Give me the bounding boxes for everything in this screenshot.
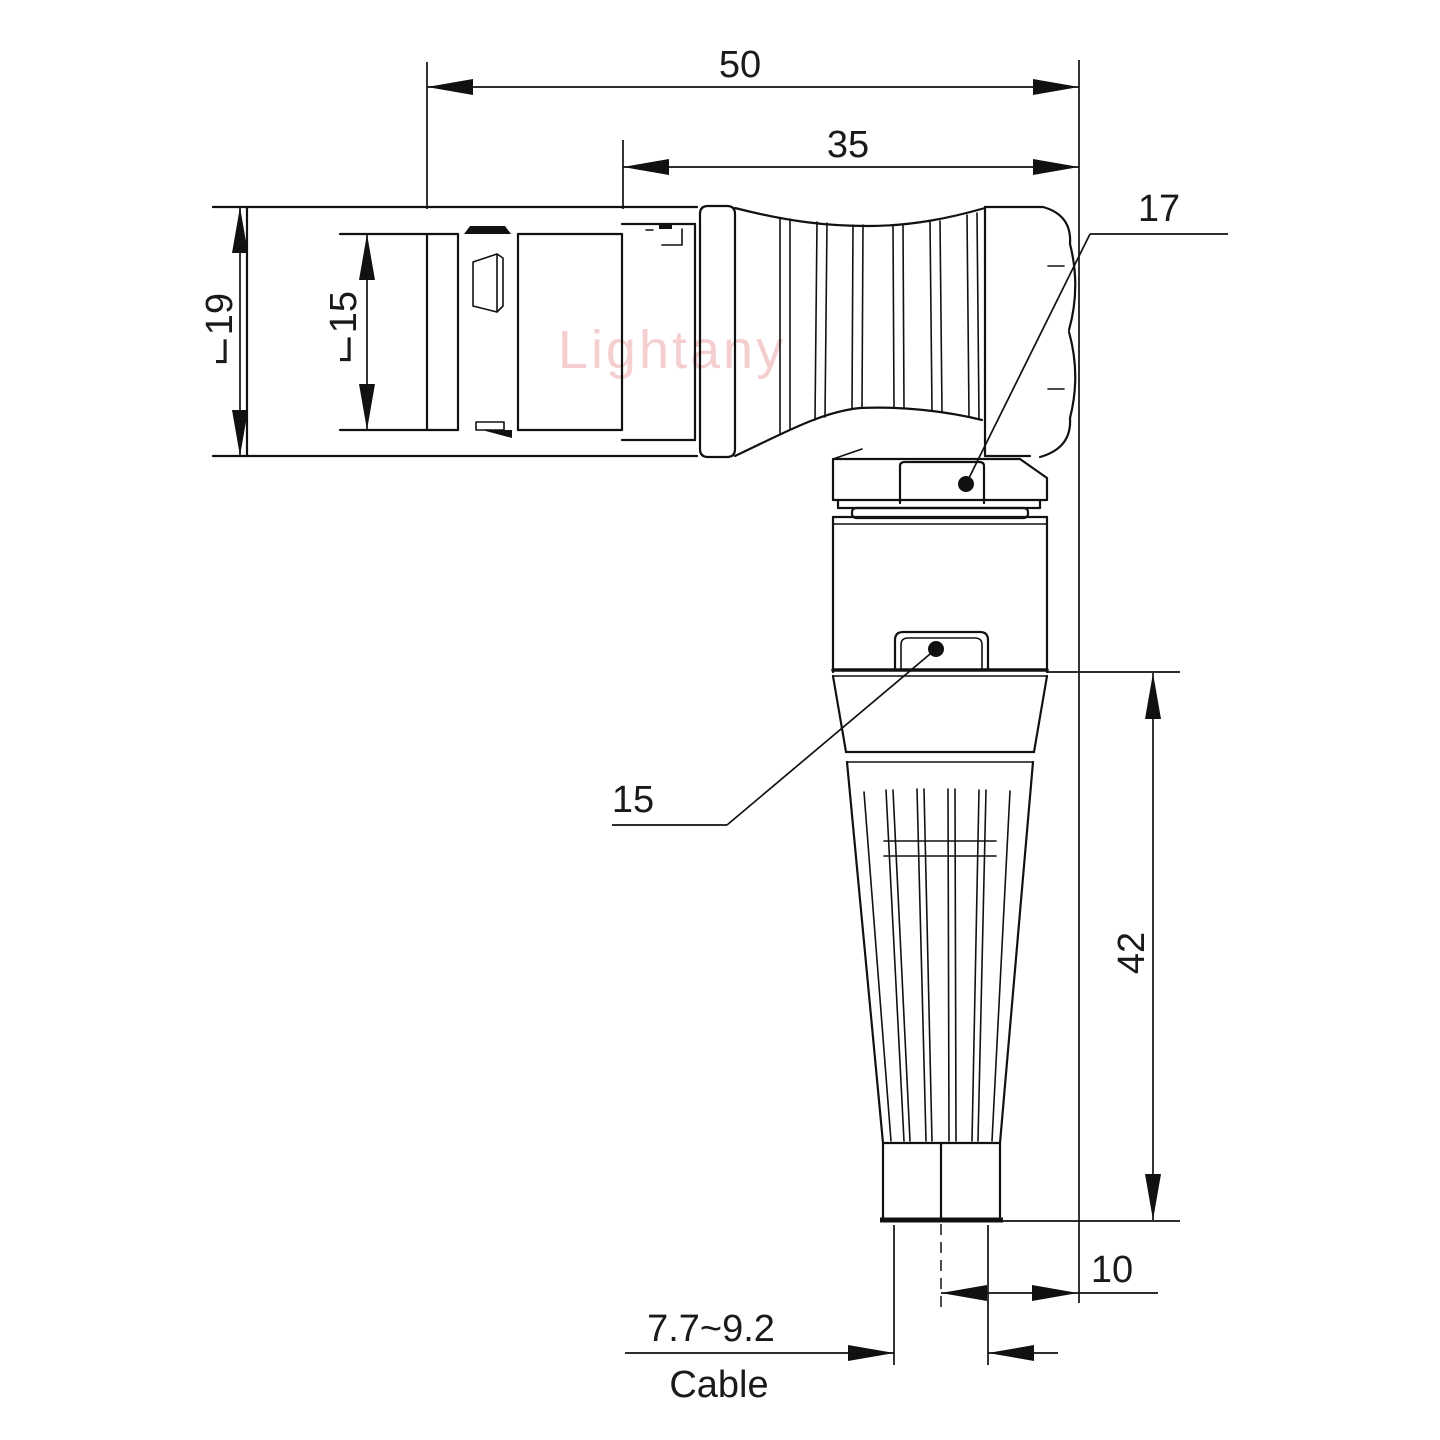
watermark-text: Lightany (558, 320, 786, 380)
dim-outer-diameter: ⌙19 (199, 207, 248, 456)
dim-label-cable: Cable (669, 1364, 768, 1406)
drawing-page: Lightany (0, 0, 1440, 1440)
leader-nut-width: 17 (966, 188, 1228, 484)
dim-overall-length: 50 (427, 44, 1079, 1303)
dim-label-10: 10 (1091, 1249, 1133, 1291)
dim-label-50: 50 (719, 44, 761, 86)
strain-relief-boot (833, 676, 1047, 1143)
vertical-body-bell (833, 517, 1047, 676)
dim-label-35: 35 (827, 124, 869, 166)
elbow-clamp-band (833, 449, 1047, 518)
dim-axis-offset: 10 (941, 1224, 1158, 1312)
keying-latch-block (458, 226, 518, 438)
dim-label-15: 15 (612, 779, 654, 821)
dim-grip-length: 35 (623, 124, 1079, 209)
dim-label-dia15: ⌙15 (323, 291, 365, 365)
dim-label-17: 17 (1138, 188, 1180, 230)
technical-drawing-canvas: Lightany (0, 0, 1440, 1440)
dim-cable-range: 7.7~9.2 Cable (625, 1225, 1058, 1406)
dim-label-42: 42 (1111, 932, 1153, 974)
dim-body-height: 42 (1003, 672, 1180, 1221)
cable-ferrule (880, 1143, 1003, 1220)
dim-label-cable-range: 7.7~9.2 (647, 1308, 775, 1350)
dim-label-dia19: ⌙19 (199, 293, 241, 367)
dim-inner-diameter: ⌙15 (323, 234, 375, 430)
